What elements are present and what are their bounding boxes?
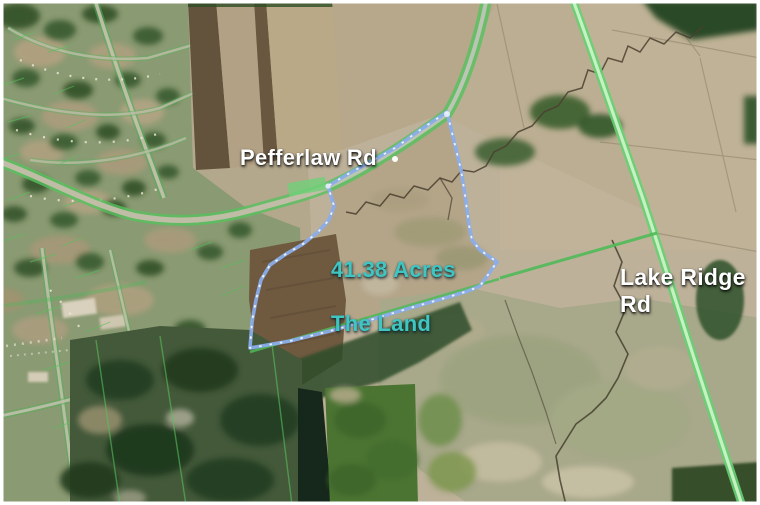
satellite-imagery — [0, 0, 760, 505]
boundary-marker-dot — [392, 156, 398, 162]
corner-marker-dot2 — [325, 183, 330, 188]
aerial-map[interactable]: Pefferlaw Rd 41.38 Acres The Land Lake R… — [0, 0, 760, 505]
corner-marker-dot — [444, 111, 450, 117]
farm-strips — [188, 0, 342, 170]
